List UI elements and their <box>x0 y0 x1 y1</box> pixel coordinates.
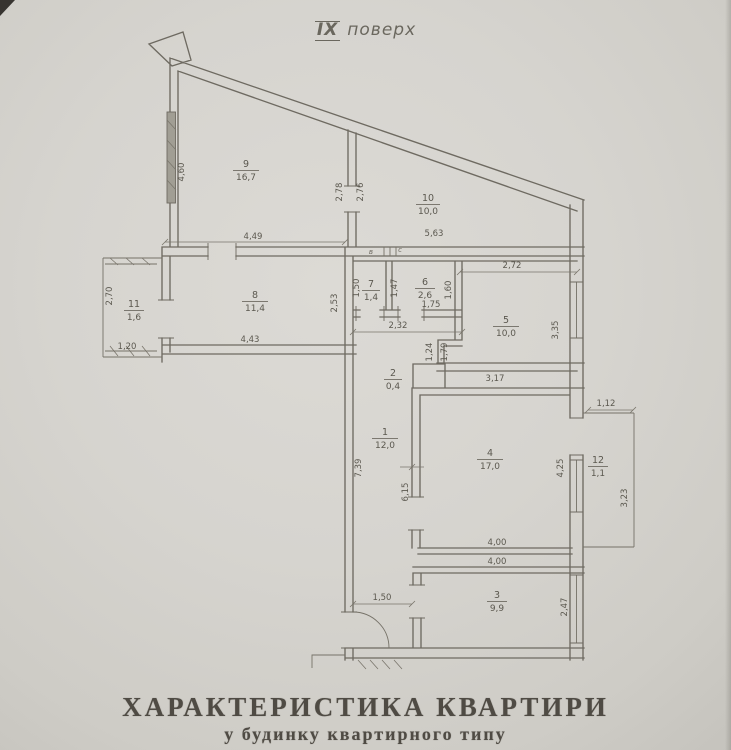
dim-room4-right: 4,25 <box>556 459 566 478</box>
dim-room5-bottom: 3,17 <box>486 374 505 384</box>
room-area: 11,4 <box>245 304 265 314</box>
dim-room10-bottom: 5,63 <box>425 229 444 239</box>
room-number: 11 <box>128 299 140 310</box>
dim-entry-width: 1,50 <box>373 593 392 603</box>
room-area: 10,0 <box>418 207 438 217</box>
room-area: 9,9 <box>490 604 505 614</box>
room-label-9: 9 16,7 <box>233 159 259 183</box>
room-label-6: 6 2,6 <box>415 277 435 301</box>
dim-room9-left: 4,60 <box>177 163 187 182</box>
dim-room3-top: 4,00 <box>488 557 507 567</box>
dim-hall-left: 7,39 <box>354 459 364 478</box>
vent-mark-a: в <box>369 248 373 256</box>
room-number: 10 <box>422 193 434 204</box>
room-number: 5 <box>503 315 509 326</box>
dim-mid-right: 2,76 <box>356 183 366 202</box>
room-area: 10,0 <box>496 329 516 339</box>
dim-room6-left: 1,47 <box>390 279 400 298</box>
room-number: 12 <box>592 455 604 466</box>
dim-hall-right: 6,15 <box>401 483 411 502</box>
room-label-4: 4 17,0 <box>477 448 503 472</box>
walls-layer <box>103 32 636 669</box>
dim-room7-left: 1,50 <box>352 279 362 298</box>
dim-room9-bottom: 4,49 <box>244 232 263 242</box>
vent-mark-b: с <box>398 246 402 254</box>
dim-room6-right: 1,60 <box>444 281 454 300</box>
dim-jog-lower: 1,79 <box>440 343 450 362</box>
room-number: 6 <box>422 277 428 288</box>
room-number: 3 <box>494 590 500 601</box>
room-labels: 9 16,7 10 10,0 11 1,6 8 11,4 7 <box>124 159 608 614</box>
room-area: 12,0 <box>375 441 395 451</box>
room-label-2: 2 0,4 <box>384 368 402 392</box>
room-number: 1 <box>382 427 388 438</box>
dim-room11-left: 2,70 <box>105 287 115 306</box>
thin-walls-balconies <box>103 247 634 668</box>
dim-balcony-top: 1,12 <box>597 399 616 409</box>
room-number: 8 <box>252 290 258 301</box>
outer-walls <box>149 32 584 660</box>
dim-room3-right: 2,47 <box>560 598 570 617</box>
room-label-10: 10 10,0 <box>416 193 440 217</box>
dim-room4-bottom: 4,00 <box>488 538 507 548</box>
room-label-7: 7 1,4 <box>362 279 380 303</box>
dim-jog-upper: 1,24 <box>425 343 435 362</box>
room-label-5: 5 10,0 <box>493 315 519 339</box>
dim-sanitary-bottom: 2,32 <box>389 321 408 331</box>
floor-plan-drawing: 9 16,7 10 10,0 11 1,6 8 11,4 7 <box>0 0 731 750</box>
room-area: 0,4 <box>386 382 401 392</box>
room-label-3: 3 9,9 <box>487 590 507 614</box>
room-label-8: 8 11,4 <box>242 290 268 314</box>
document-footer: ХАРАКТЕРИСТИКА КВАРТИРИ у будинку кварти… <box>0 692 731 745</box>
room-label-11: 11 1,6 <box>124 299 144 323</box>
footer-subtitle: у будинку квартирного типу <box>0 724 731 745</box>
window-room9-sill <box>167 112 176 203</box>
dim-room8-bottom: 4,43 <box>241 335 260 345</box>
room-number: 2 <box>390 368 396 379</box>
room-number: 7 <box>368 279 374 290</box>
footer-title: ХАРАКТЕРИСТИКА КВАРТИРИ <box>0 692 731 723</box>
room-area: 1,6 <box>127 313 142 323</box>
room-number: 9 <box>243 159 249 170</box>
entry-door-swing <box>353 612 389 648</box>
room-label-12: 12 1,1 <box>588 455 608 479</box>
dim-balcony-right: 3,23 <box>620 489 630 508</box>
dim-room5-top: 2,72 <box>503 261 522 271</box>
dim-room6-bottom: 1,75 <box>422 300 441 310</box>
room-area: 17,0 <box>480 462 500 472</box>
scanned-floorplan-page: IXповерх 9 16,7 10 10,0 <box>0 0 731 750</box>
room-area: 1,4 <box>364 293 379 303</box>
dim-room11-bottom: 1,20 <box>118 342 137 352</box>
room-number: 4 <box>487 448 493 459</box>
room-label-1: 1 12,0 <box>372 427 398 451</box>
dim-room5-right: 3,35 <box>551 321 561 340</box>
dim-mid-left: 2,78 <box>335 183 345 202</box>
room-area: 16,7 <box>236 173 256 183</box>
dim-room8-right: 2,53 <box>330 294 340 313</box>
room-area: 1,1 <box>591 469 605 479</box>
